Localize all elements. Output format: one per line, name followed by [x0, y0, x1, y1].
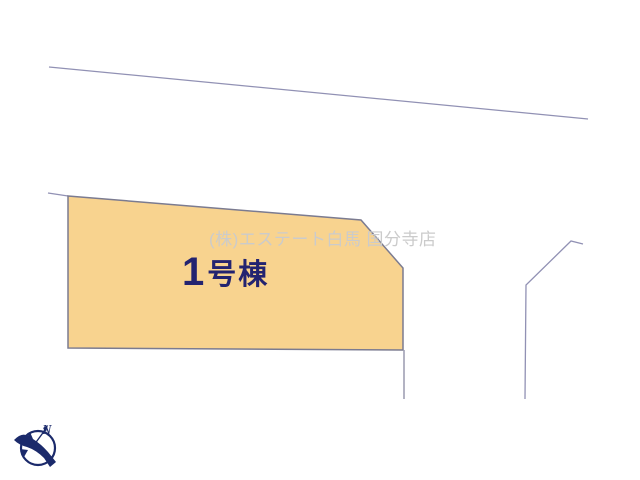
road-edge-line-left-stub — [48, 193, 68, 196]
neighbor-boundary-polyline — [525, 241, 583, 399]
north-compass-bird-icon: N — [10, 418, 68, 476]
parcel-label-number: 1 — [182, 252, 204, 292]
site-plan-canvas: (株)エステート白馬 国分寺店 1 号棟 N — [0, 0, 640, 480]
parcel-label-suffix: 号棟 — [207, 261, 269, 292]
parcel-label: 1 号棟 — [182, 252, 269, 292]
compass-north-label: N — [41, 423, 52, 438]
road-edge-line-upper — [49, 67, 588, 119]
company-watermark: (株)エステート白馬 国分寺店 — [209, 230, 437, 250]
